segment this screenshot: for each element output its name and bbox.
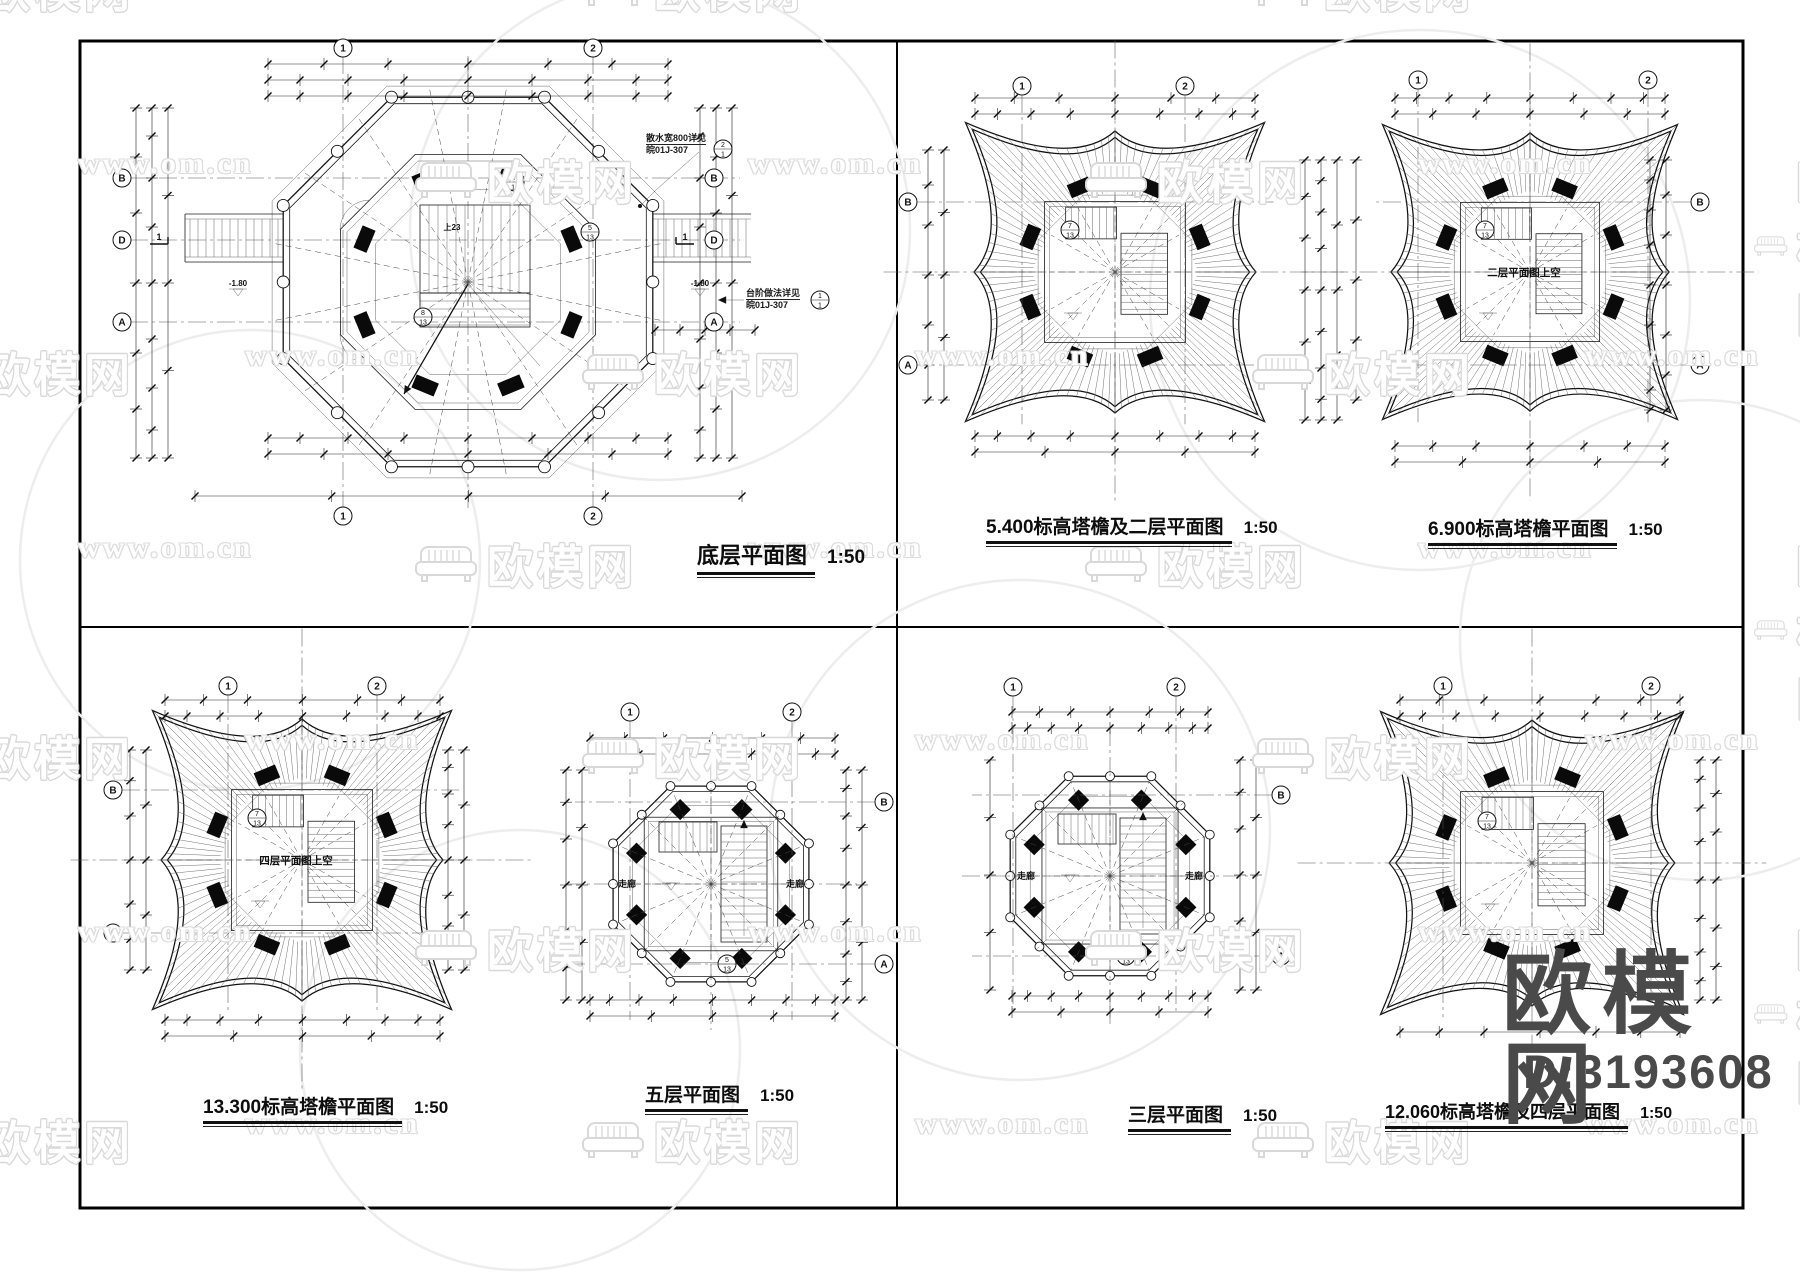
svg-text:A: A — [880, 959, 887, 970]
drawing-sheet: 1212BDABDA7135138132111-1.80-1.80上231171… — [0, 0, 1800, 1273]
svg-text:B: B — [109, 785, 116, 796]
plan-three-drawing: 走廊走廊51312BA — [962, 678, 1290, 1024]
svg-text:13: 13 — [586, 235, 594, 242]
title-scale: 1:50 — [1243, 1106, 1277, 1125]
title-eave-13300: 13.300标高塔檐平面图1:50 — [203, 1092, 448, 1124]
title-text: 6.900标高塔檐平面图 — [1428, 514, 1617, 546]
steps-note-line2: 皖01J-307 — [746, 300, 800, 311]
sheet-frame — [80, 41, 1743, 1208]
svg-text:1: 1 — [225, 681, 231, 692]
svg-text:7: 7 — [1485, 814, 1489, 821]
svg-text:1: 1 — [721, 152, 725, 159]
title-scale: 1:50 — [1244, 518, 1278, 537]
svg-text:2: 2 — [789, 707, 795, 718]
plan-five-drawing: 走廊走廊51312BA — [560, 703, 893, 1030]
svg-text:1: 1 — [682, 232, 687, 242]
svg-text:B: B — [1277, 790, 1284, 801]
svg-text:2: 2 — [1182, 81, 1188, 92]
svg-text:A: A — [1277, 951, 1284, 962]
title-text: 五层平面图 — [645, 1080, 748, 1112]
svg-text:B: B — [1696, 197, 1703, 208]
plan-eave-5400-drawing: 71312BA — [884, 41, 1347, 504]
corner-brand-watermark: 欧模网 — [1502, 950, 1800, 1130]
svg-text:1: 1 — [1010, 682, 1016, 693]
drain-note-line1: 散水宽800详见 — [646, 133, 706, 145]
svg-text:B: B — [118, 173, 125, 184]
title-three: 三层平面图1:50 — [1128, 1100, 1277, 1132]
svg-text:D: D — [710, 235, 717, 246]
svg-text:A: A — [1696, 360, 1703, 371]
void-note: 四层平面图上空 — [259, 854, 333, 867]
svg-text:2: 2 — [590, 511, 596, 522]
svg-text:2: 2 — [1173, 682, 1179, 693]
plan-eave-13300-drawing: 713四层平面图上空12BA — [71, 629, 534, 1092]
void-note: 二层平面图上空 — [1487, 266, 1561, 279]
svg-text:13: 13 — [1066, 233, 1074, 240]
svg-text:2: 2 — [374, 681, 380, 692]
title-scale: 1:50 — [827, 547, 865, 568]
svg-text:5: 5 — [1124, 949, 1128, 956]
svg-text:-1.80: -1.80 — [691, 279, 710, 288]
steps-note: 台阶做法详见 皖01J-307 — [746, 288, 800, 312]
corridor-label: 走廊 — [1016, 870, 1035, 881]
svg-text:7: 7 — [513, 175, 517, 182]
title-ground: 底层平面图1:50 — [697, 538, 865, 575]
title-eave-5400: 5.400标高塔檐及二层平面图1:50 — [986, 512, 1278, 544]
svg-text:7: 7 — [1483, 223, 1487, 230]
svg-text:1: 1 — [1019, 81, 1025, 92]
title-text: 三层平面图 — [1128, 1100, 1231, 1132]
svg-text:5: 5 — [725, 957, 729, 964]
plan-ground-drawing: 1212BDABDA7135138132111-1.80-1.80上2311 — [113, 39, 829, 525]
corridor-label: 走廊 — [1184, 870, 1203, 881]
drain-note: 散水宽800详见 皖01J-307 — [646, 133, 706, 157]
svg-text:2: 2 — [721, 142, 725, 149]
svg-text:7: 7 — [1068, 223, 1072, 230]
svg-text:A: A — [118, 317, 125, 328]
title-scale: 1:50 — [760, 1086, 794, 1105]
svg-text:上23: 上23 — [444, 222, 461, 232]
svg-text:13: 13 — [1483, 824, 1491, 831]
title-eave-6900: 6.900标高塔檐平面图1:50 — [1428, 514, 1663, 546]
corner-id-watermark: ID:3193608 — [1508, 1048, 1774, 1095]
title-text: 底层平面图 — [697, 538, 815, 575]
plan-eave-6900-drawing: 713二层平面图上空12BA — [1301, 43, 1758, 500]
svg-text:A: A — [710, 317, 717, 328]
svg-text:B: B — [880, 797, 887, 808]
svg-text:A: A — [109, 928, 116, 939]
svg-text:D: D — [118, 235, 125, 246]
svg-text:2: 2 — [1648, 681, 1654, 692]
svg-text:13: 13 — [511, 185, 519, 192]
svg-text:1: 1 — [1415, 75, 1421, 86]
svg-text:13: 13 — [1481, 233, 1489, 240]
svg-text:B: B — [904, 197, 911, 208]
svg-text:7: 7 — [255, 811, 259, 818]
title-text: 5.400标高塔檐及二层平面图 — [986, 512, 1232, 544]
svg-text:1: 1 — [818, 303, 822, 310]
svg-text:8: 8 — [421, 310, 425, 317]
title-scale: 1:50 — [1629, 520, 1663, 539]
svg-text:2: 2 — [1645, 75, 1651, 86]
title-text: 13.300标高塔檐平面图 — [203, 1092, 402, 1124]
svg-text:1: 1 — [340, 511, 346, 522]
svg-text:B: B — [710, 173, 717, 184]
svg-text:5: 5 — [588, 225, 592, 232]
svg-text:2: 2 — [590, 43, 596, 54]
svg-text:13: 13 — [253, 821, 261, 828]
svg-text:1: 1 — [156, 232, 161, 242]
svg-text:13: 13 — [419, 320, 427, 327]
drain-note-line2: 皖01J-307 — [646, 145, 706, 156]
corridor-label: 走廊 — [785, 878, 804, 889]
steps-note-line1: 台阶做法详见 — [746, 288, 800, 300]
title-scale: 1:50 — [414, 1098, 448, 1117]
title-five: 五层平面图1:50 — [645, 1080, 794, 1112]
svg-text:1: 1 — [627, 707, 633, 718]
svg-text:-1.80: -1.80 — [229, 279, 248, 288]
svg-text:1: 1 — [1440, 681, 1446, 692]
svg-text:1: 1 — [818, 293, 822, 300]
corridor-label: 走廊 — [617, 878, 636, 889]
svg-text:A: A — [904, 360, 911, 371]
svg-text:13: 13 — [1122, 959, 1130, 966]
svg-text:13: 13 — [723, 967, 731, 974]
svg-text:1: 1 — [340, 43, 346, 54]
